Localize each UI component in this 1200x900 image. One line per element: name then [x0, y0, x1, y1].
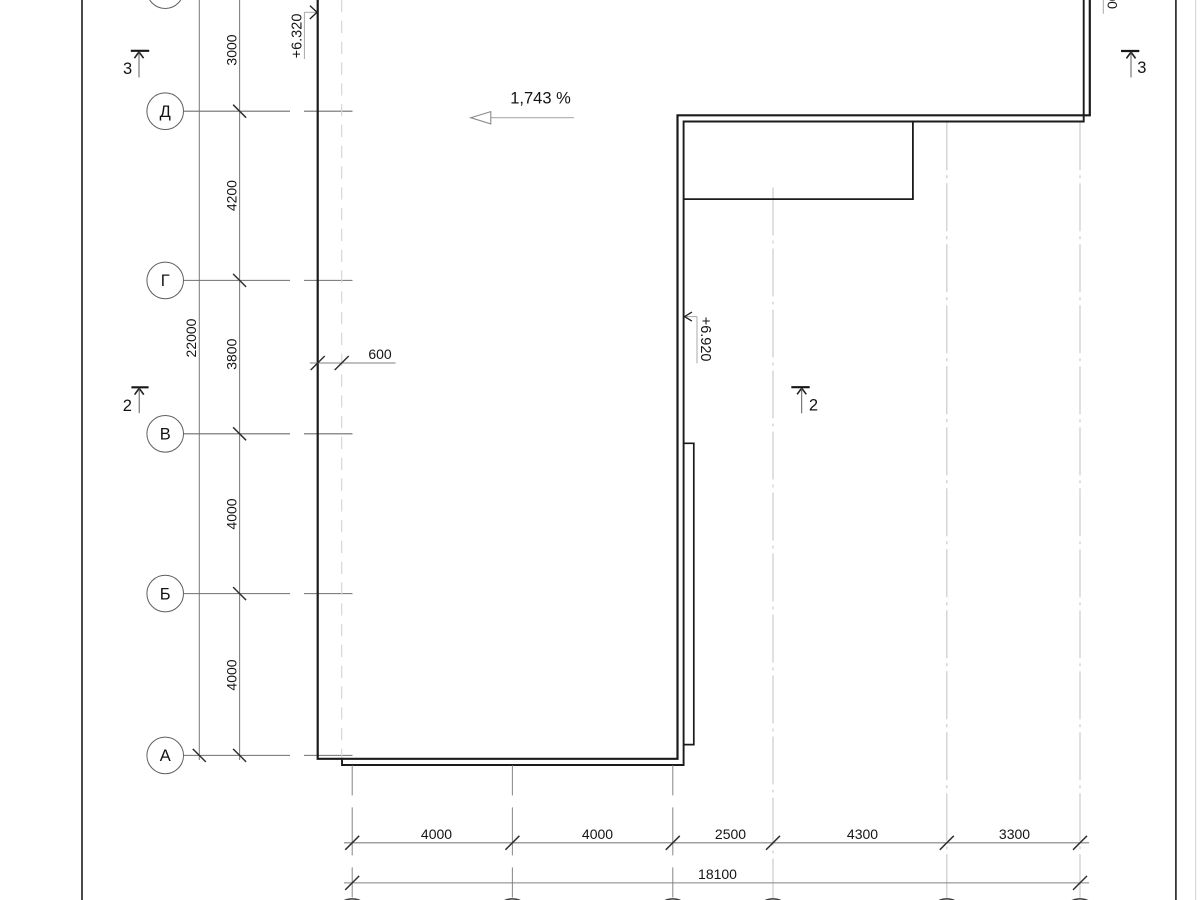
svg-text:18100: 18100 [698, 866, 737, 882]
svg-text:4200: 4200 [223, 180, 239, 211]
svg-text:4000: 4000 [421, 826, 452, 842]
svg-text:3300: 3300 [999, 826, 1030, 842]
svg-text:600: 600 [368, 346, 392, 362]
svg-text:1,743 %: 1,743 % [510, 90, 571, 108]
svg-text:2: 2 [809, 397, 818, 415]
svg-text:3: 3 [123, 60, 132, 78]
svg-text:Б: Б [160, 585, 171, 603]
svg-text:4300: 4300 [847, 826, 878, 842]
svg-text:4000: 4000 [582, 826, 613, 842]
svg-text:2: 2 [123, 397, 132, 415]
svg-text:3: 3 [1137, 59, 1146, 77]
svg-text:4000: 4000 [223, 659, 239, 690]
svg-text:4000: 4000 [223, 498, 239, 529]
svg-text:В: В [160, 426, 171, 444]
svg-text:Д: Д [160, 103, 171, 121]
svg-text:+6.920: +6.920 [697, 317, 713, 362]
svg-text:+6.320: +6.320 [289, 14, 305, 59]
svg-text:3000: 3000 [223, 34, 239, 65]
svg-text:600: 600 [1104, 0, 1120, 9]
svg-text:А: А [160, 747, 171, 765]
svg-text:3800: 3800 [223, 338, 239, 369]
svg-text:22000: 22000 [183, 318, 199, 357]
svg-text:2500: 2500 [715, 826, 746, 842]
svg-text:Г: Г [161, 272, 170, 290]
